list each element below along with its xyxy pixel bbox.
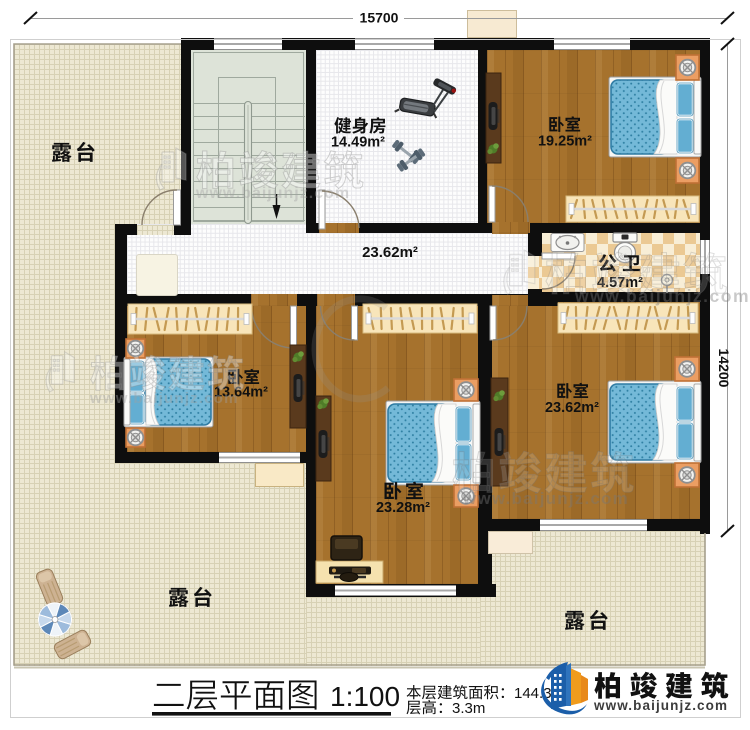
svg-text:www.baijunjz.com: www.baijunjz.com	[593, 698, 728, 713]
svg-text:23.28m²: 23.28m²	[376, 500, 430, 516]
svg-text:14200: 14200	[716, 349, 732, 388]
svg-text:www.baijunjz.com: www.baijunjz.com	[574, 286, 750, 306]
svg-text:19.25m²: 19.25m²	[538, 134, 592, 150]
svg-text:www.baijunjz.com: www.baijunjz.com	[195, 185, 350, 202]
svg-text:23.62m²: 23.62m²	[545, 400, 599, 416]
svg-text:23.62m²: 23.62m²	[362, 244, 418, 261]
svg-text:3.3m: 3.3m	[452, 700, 485, 717]
svg-text:www.baijunjz.com: www.baijunjz.com	[89, 390, 239, 407]
svg-text:www.baijunjz.com: www.baijunjz.com	[462, 489, 629, 508]
svg-text:15700: 15700	[360, 10, 399, 26]
svg-text:1:100: 1:100	[330, 681, 400, 712]
svg-text:14.49m²: 14.49m²	[331, 135, 385, 151]
